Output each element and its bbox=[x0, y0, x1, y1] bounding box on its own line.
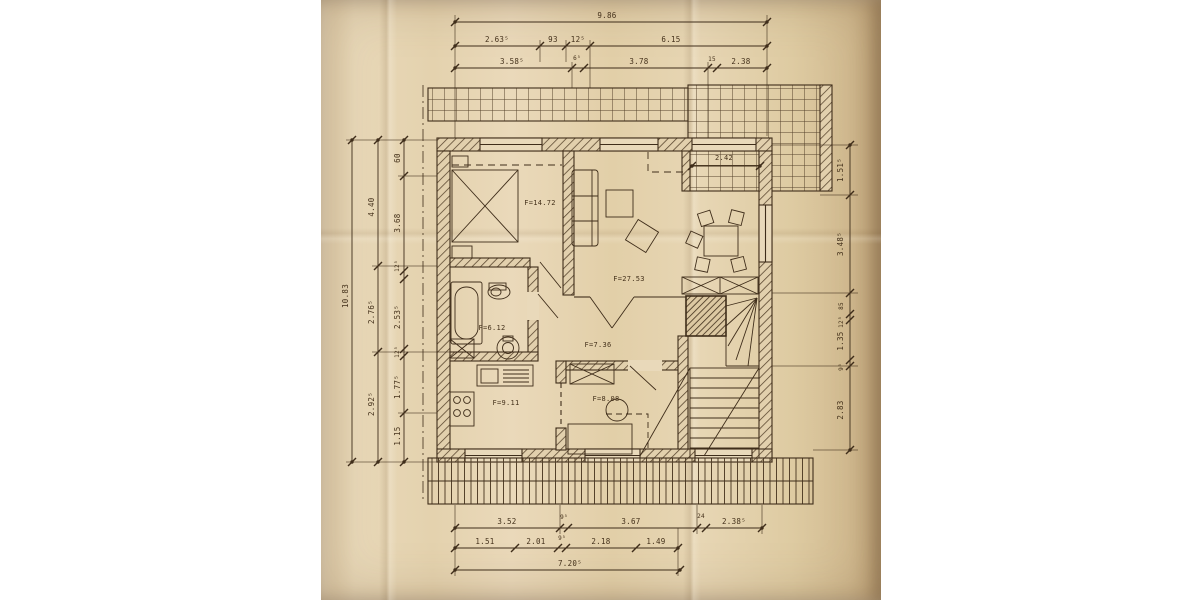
bathroom-fixtures bbox=[450, 282, 519, 359]
room-label: F=6.12 bbox=[478, 324, 505, 332]
dim-label-bottom: 1.51 bbox=[475, 537, 494, 546]
kitchen-fixtures bbox=[450, 365, 533, 426]
dim-label-top: 6⁵ bbox=[573, 55, 581, 62]
bedroom-furniture bbox=[452, 156, 518, 258]
dim-label-top: 3.78 bbox=[629, 57, 648, 66]
dim-label-bottom: 2.01 bbox=[526, 537, 545, 546]
room-label: F=7.36 bbox=[584, 341, 611, 349]
dim-label-top: 6.15 bbox=[661, 35, 680, 44]
dim-label-left: 2.92⁵ bbox=[367, 392, 376, 416]
dim-label-top: 3.58⁵ bbox=[500, 57, 524, 66]
dim-label-top: 2.38 bbox=[731, 57, 750, 66]
room-label: F=9.11 bbox=[492, 399, 519, 407]
dim-label-bottom: 3.52 bbox=[497, 517, 516, 526]
dim-label-bottom: 9⁵ bbox=[560, 514, 568, 521]
railing-x-brace bbox=[682, 277, 758, 294]
dim-label-top: 12⁵ bbox=[571, 35, 585, 44]
dim-label-right: 9⁵ bbox=[838, 363, 845, 371]
dim-label-left: 12⁵ bbox=[394, 346, 401, 358]
interior-walls bbox=[450, 151, 688, 450]
dim-label-left: 10.83 bbox=[341, 284, 350, 308]
dim-label-left: 1.15 bbox=[393, 426, 402, 445]
dim-label-bottom: 2.18 bbox=[591, 537, 610, 546]
dim-label-bottom: 2.38⁵ bbox=[722, 517, 746, 526]
dim-label-bottom: 9⁵ bbox=[558, 535, 566, 542]
dim-label-left: 60 bbox=[393, 153, 402, 163]
photo-background: F=14.72F=27.532.42F=6.12F=7.36F=9.11F=8.… bbox=[0, 0, 1200, 600]
terrace-deck bbox=[428, 458, 813, 504]
dim-label-left: 4.40 bbox=[367, 197, 376, 216]
dim-label-left: 2.76⁵ bbox=[367, 300, 376, 324]
dim-label-right: 1.51⁵ bbox=[836, 158, 845, 182]
dim-label-left: 3.68 bbox=[393, 213, 402, 232]
dim-label-bottom: 1.49 bbox=[646, 537, 665, 546]
dim-label-top: 93 bbox=[548, 35, 558, 44]
room-label: F=8.08 bbox=[592, 395, 619, 403]
dim-label-right: 12⁵ bbox=[838, 316, 845, 328]
dim-label-right: 2.83 bbox=[836, 400, 845, 419]
chimney bbox=[686, 296, 726, 336]
dim-label-bottom: 24 bbox=[697, 513, 705, 520]
dim-label-top: 9.86 bbox=[597, 11, 616, 20]
small-room-furniture bbox=[568, 364, 632, 454]
dim-label-right: 3.48⁵ bbox=[836, 232, 845, 256]
dim-label-right: 85 bbox=[838, 302, 845, 310]
dim-label-top: 15 bbox=[708, 56, 716, 63]
dim-label-left: 1.77⁵ bbox=[393, 375, 402, 399]
room-label: F=27.53 bbox=[613, 275, 645, 283]
floorplan-drawing: F=14.72F=27.532.42F=6.12F=7.36F=9.11F=8.… bbox=[0, 0, 1200, 600]
dim-label-bottom: 7.20⁵ bbox=[558, 559, 582, 568]
dim-label-top: 2.63⁵ bbox=[485, 35, 509, 44]
room-label: 2.42 bbox=[715, 154, 733, 162]
dim-label-right: 1.35 bbox=[836, 331, 845, 350]
room-label: F=14.72 bbox=[524, 199, 556, 207]
dim-label-left: 12⁵ bbox=[394, 260, 401, 272]
dim-label-left: 2.53⁵ bbox=[393, 305, 402, 329]
dim-label-bottom: 3.67 bbox=[621, 517, 640, 526]
